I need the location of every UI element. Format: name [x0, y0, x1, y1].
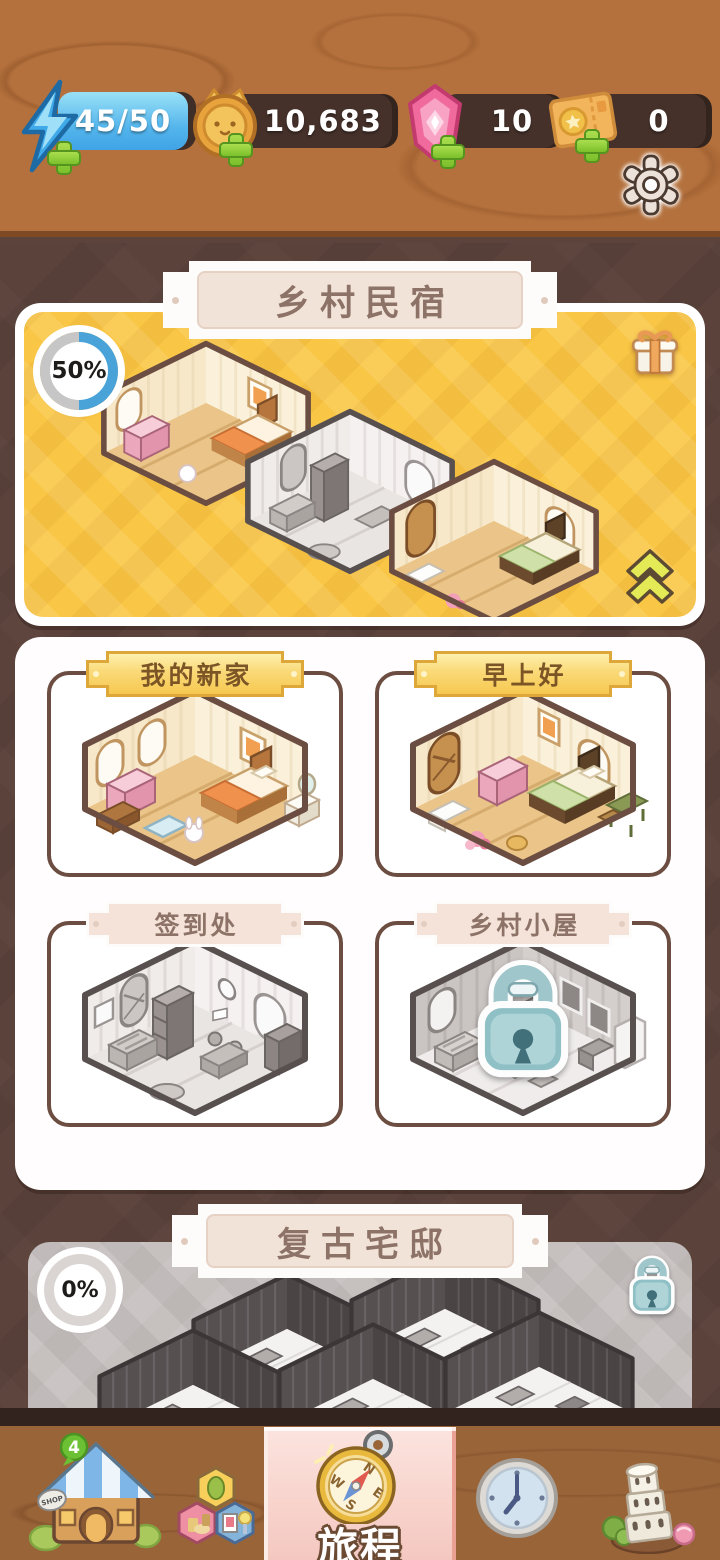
- rooms-list-panel: 我的新家: [15, 637, 705, 1190]
- add-gems-button[interactable]: [430, 134, 462, 166]
- add-coins-button[interactable]: [218, 132, 250, 164]
- room-banner: 乡村小屋: [414, 901, 632, 947]
- chapter-scene: 50%: [24, 312, 696, 617]
- banner-dot: [181, 1238, 188, 1245]
- add-tickets-button[interactable]: [574, 128, 606, 160]
- scene-room-bedroom-2: [364, 452, 624, 617]
- gems-chip[interactable]: 10: [402, 82, 560, 176]
- next-chapter-banner: 复古宅邸: [172, 1204, 548, 1278]
- gems-value: 10: [491, 104, 533, 138]
- clock-icon[interactable]: [470, 1454, 564, 1544]
- next-chapter-title: 复古宅邸: [267, 1217, 453, 1266]
- lock-icon: [624, 1250, 680, 1320]
- bottom-navigation: SHOP 4: [0, 1426, 720, 1560]
- room-card-good-morning[interactable]: 早上好: [375, 671, 671, 877]
- room-card-country-cottage[interactable]: 乡村小屋: [375, 921, 671, 1127]
- next-chapter-progress-value: 0%: [61, 1278, 98, 1303]
- lock-icon: [467, 954, 579, 1084]
- energy-chip[interactable]: 45/50: [10, 78, 192, 180]
- game-screen: 45/50 10,683 10: [0, 0, 720, 1560]
- banner-dot: [532, 1238, 539, 1245]
- shop-badge-count: 4: [68, 1438, 80, 1458]
- mansion-preview: [58, 1264, 678, 1408]
- room-card-my-new-home[interactable]: 我的新家: [47, 671, 343, 877]
- chapter-progress-ring: 50%: [40, 332, 118, 410]
- room-banner: 早上好: [414, 651, 632, 697]
- room-thumbnail: [383, 681, 663, 871]
- room-name: 我的新家: [137, 656, 252, 692]
- next-chapter-progress-ring: 0%: [44, 1254, 116, 1326]
- settings-gear-icon[interactable]: [620, 154, 682, 216]
- shop-icon[interactable]: SHOP 4: [22, 1430, 168, 1558]
- collapse-chevron-up-icon[interactable]: [620, 547, 680, 605]
- current-chapter-card[interactable]: 50%: [15, 303, 705, 626]
- compass-icon: N W S E: [306, 1428, 414, 1524]
- chapter-title-banner: 乡村民宿: [163, 261, 557, 339]
- banner-dot: [172, 297, 179, 304]
- banner-dot: [541, 297, 548, 304]
- tower-icon[interactable]: [592, 1440, 704, 1554]
- coins-chip[interactable]: 10,683: [188, 84, 394, 176]
- room-name: 早上好: [479, 656, 566, 692]
- gift-box-icon[interactable]: [626, 322, 684, 380]
- coins-value: 10,683: [264, 104, 382, 138]
- room-banner: 我的新家: [86, 651, 304, 697]
- nav-divider: [0, 1408, 720, 1426]
- room-name: 乡村小屋: [465, 906, 580, 942]
- room-thumbnail: [55, 681, 335, 871]
- tickets-value: 0: [648, 104, 669, 138]
- room-banner: 签到处: [86, 901, 304, 947]
- room-thumbnail: [55, 931, 335, 1121]
- tab-journey-label: 旅程: [264, 1514, 456, 1560]
- chapter-title: 乡村民宿: [265, 275, 455, 326]
- room-card-check-in[interactable]: 签到处: [47, 921, 343, 1127]
- chapter-progress-value: 50%: [51, 358, 106, 384]
- add-energy-button[interactable]: [46, 140, 78, 172]
- room-name: 签到处: [151, 906, 238, 942]
- collection-icon[interactable]: [168, 1462, 264, 1554]
